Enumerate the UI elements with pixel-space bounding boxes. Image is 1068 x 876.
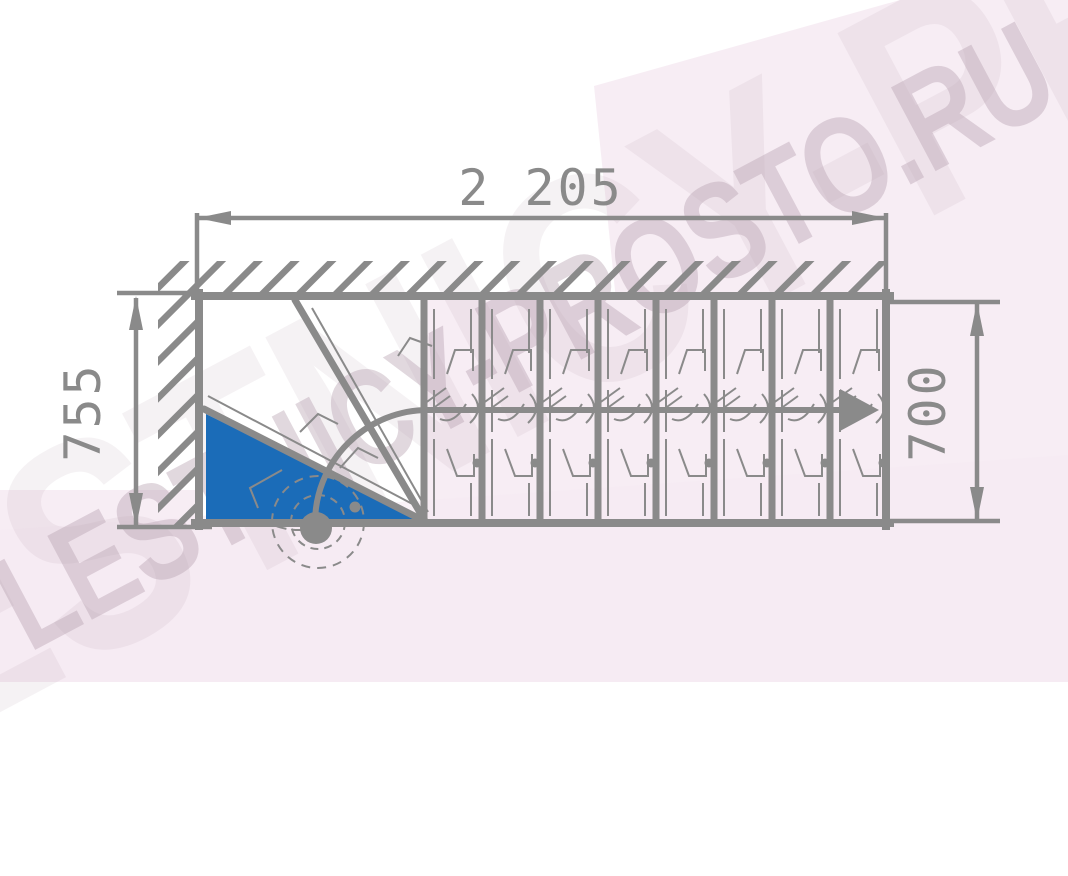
arrow-right-icon xyxy=(852,211,886,225)
newel-post-circle xyxy=(300,512,332,544)
dimension-top-label: 2 205 xyxy=(458,159,624,217)
arrow-down-icon xyxy=(129,493,143,527)
arrow-left-icon xyxy=(197,211,231,225)
staircase-drawing-page: { "title": "staircase-plan-drawing", "di… xyxy=(0,0,1068,682)
arrow-up-icon xyxy=(970,302,984,336)
dimension-right-label: 700 xyxy=(899,362,957,461)
dimension-left-label: 755 xyxy=(54,362,112,461)
fastener-dot xyxy=(350,502,361,513)
walk-line-arrow xyxy=(840,389,879,431)
arrow-up-icon xyxy=(129,296,143,330)
left-wall-hatching xyxy=(158,261,197,528)
arrow-down-icon xyxy=(970,487,984,521)
top-wall-hatching xyxy=(158,261,886,296)
staircase-plan-svg: 2 205 755 700 xyxy=(0,0,1068,682)
